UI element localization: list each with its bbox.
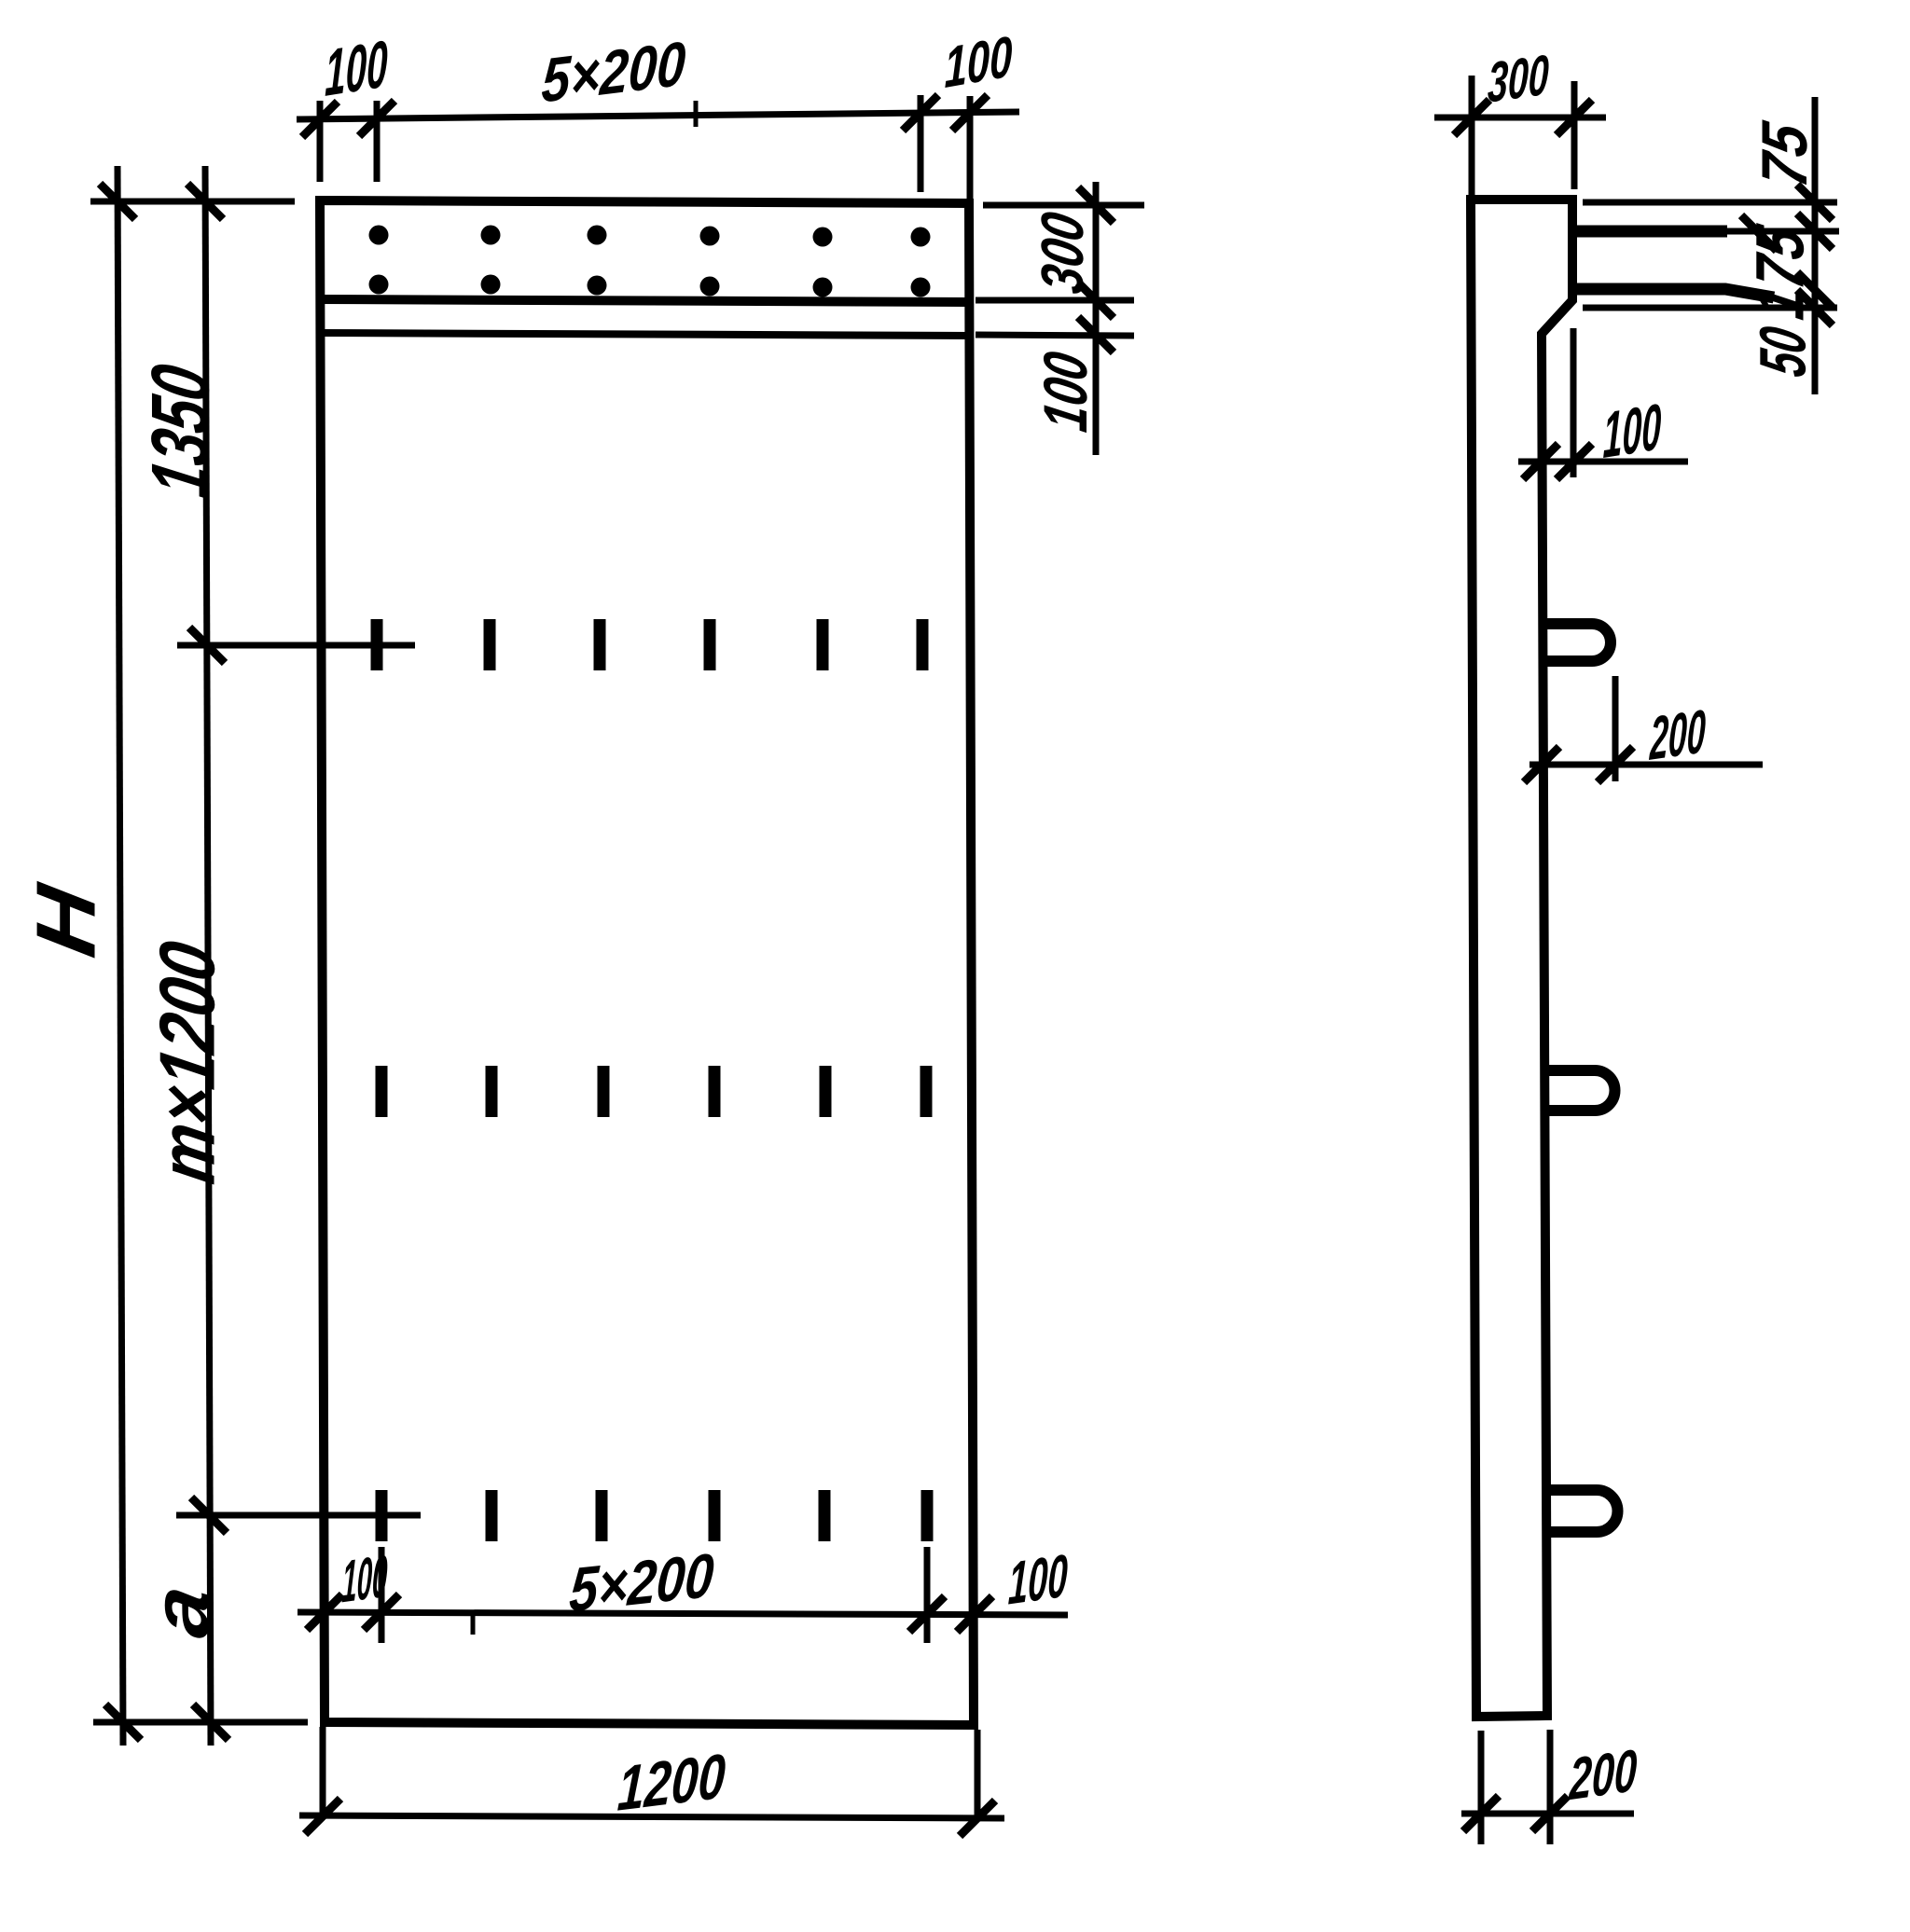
svg-text:100: 100 — [1007, 1541, 1069, 1617]
svg-text:100: 100 — [1602, 390, 1662, 472]
svg-text:50: 50 — [1746, 322, 1819, 381]
svg-text:100: 100 — [325, 26, 389, 110]
svg-text:100: 100 — [341, 1543, 389, 1615]
svg-text:m×1200: m×1200 — [143, 935, 230, 1189]
svg-text:100: 100 — [1031, 348, 1100, 436]
svg-text:300: 300 — [1029, 208, 1095, 298]
svg-text:5×200: 5×200 — [540, 29, 687, 116]
svg-text:200: 200 — [1648, 697, 1707, 773]
svg-text:175: 175 — [1741, 220, 1818, 324]
svg-text:H: H — [20, 876, 113, 962]
svg-text:200: 200 — [1568, 1738, 1638, 1814]
svg-text:100: 100 — [945, 24, 1013, 101]
svg-text:1200: 1200 — [616, 1741, 727, 1825]
svg-text:75: 75 — [1748, 117, 1820, 192]
svg-text:1350: 1350 — [134, 358, 226, 503]
svg-text:300: 300 — [1487, 42, 1550, 115]
